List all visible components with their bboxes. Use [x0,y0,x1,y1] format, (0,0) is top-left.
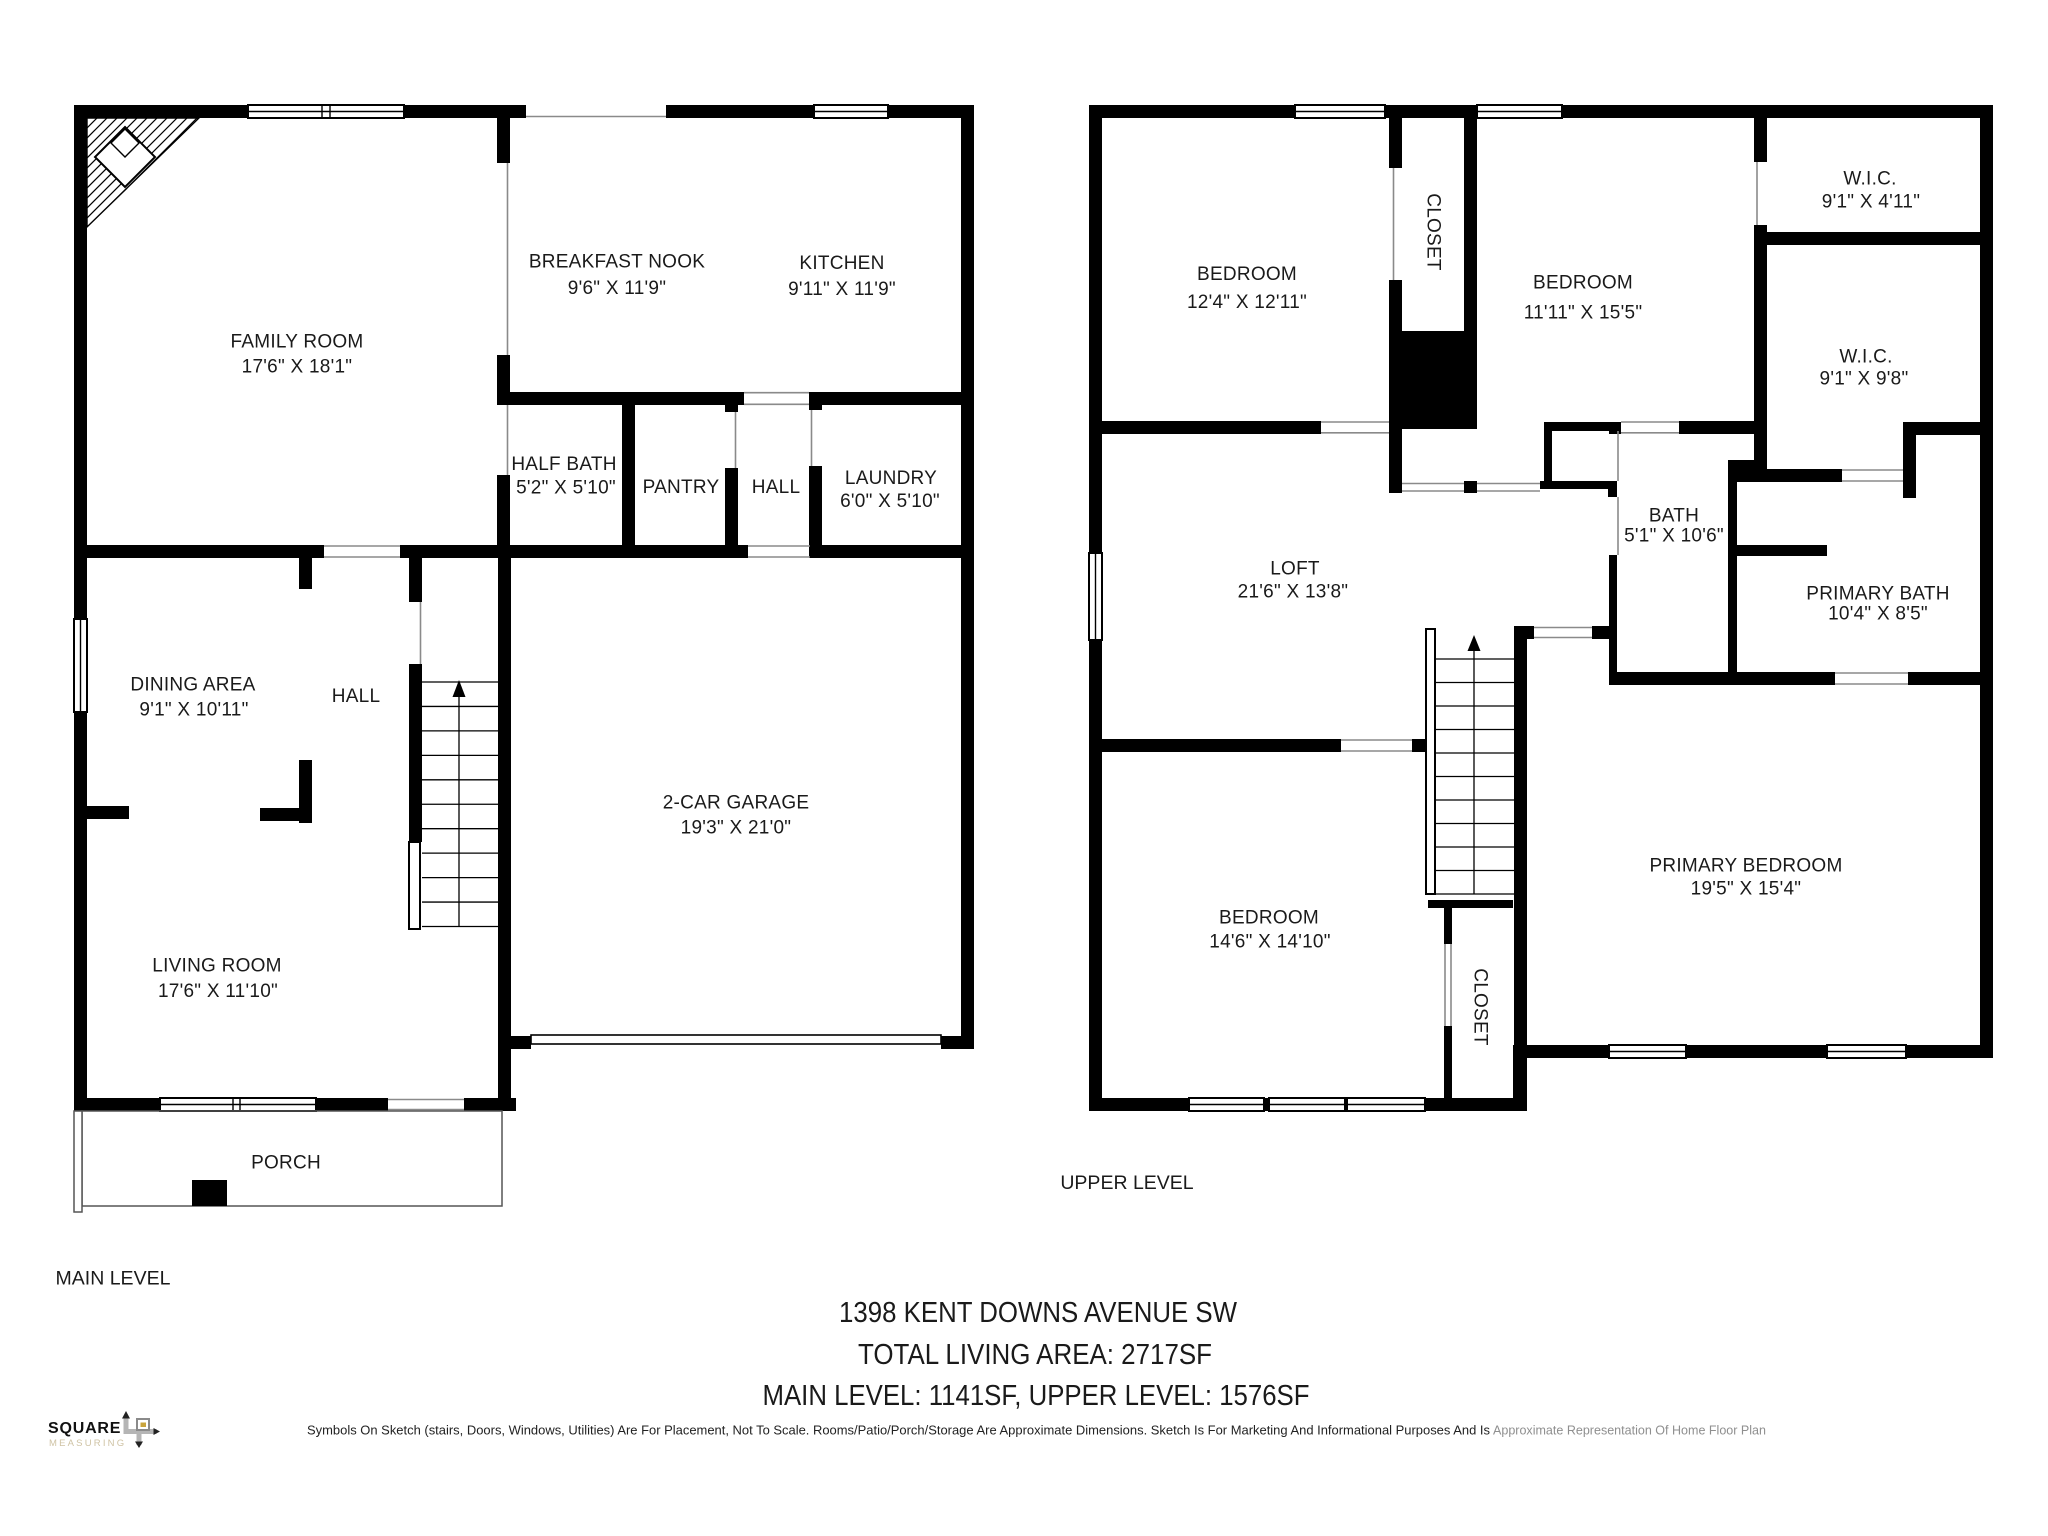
svg-text:BEDROOM: BEDROOM [1197,264,1297,285]
svg-text:9'11" X 11'9": 9'11" X 11'9" [788,279,896,300]
svg-text:BEDROOM: BEDROOM [1219,908,1319,929]
svg-text:17'6" X 11'10": 17'6" X 11'10" [158,981,278,1002]
svg-text:19'3" X 21'0": 19'3" X 21'0" [681,818,792,839]
svg-text:KITCHEN: KITCHEN [799,253,884,274]
svg-text:17'6" X 18'1": 17'6" X 18'1" [242,357,353,378]
svg-text:BATH: BATH [1649,506,1699,527]
svg-text:W.I.C.: W.I.C. [1839,347,1892,368]
svg-text:Approximate Representation Of: Approximate Representation Of Home Floor… [1493,1423,1766,1438]
svg-text:FAMILY ROOM: FAMILY ROOM [231,332,364,353]
svg-text:SQUARE: SQUARE [48,1420,121,1437]
svg-text:PANTRY: PANTRY [643,477,720,498]
svg-text:6'0" X 5'10": 6'0" X 5'10" [840,491,940,512]
svg-text:19'5" X 15'4": 19'5" X 15'4" [1691,879,1802,900]
svg-text:HALL: HALL [752,477,801,498]
svg-text:10'4" X 8'5": 10'4" X 8'5" [1828,604,1928,625]
svg-text:LAUNDRY: LAUNDRY [845,468,937,489]
svg-text:PORCH: PORCH [251,1153,321,1174]
svg-text:CLOSET: CLOSET [1469,968,1490,1046]
svg-text:LOFT: LOFT [1270,559,1320,580]
svg-text:9'6" X 11'9": 9'6" X 11'9" [568,278,666,299]
svg-text:UPPER LEVEL: UPPER LEVEL [1060,1172,1193,1194]
svg-text:9'1" X 4'11": 9'1" X 4'11" [1822,192,1920,213]
svg-text:9'1" X 10'11": 9'1" X 10'11" [139,700,248,721]
svg-text:DINING AREA: DINING AREA [130,675,255,696]
svg-text:21'6" X 13'8": 21'6" X 13'8" [1238,582,1349,603]
svg-text:Symbols On Sketch (stairs, Doo: Symbols On Sketch (stairs, Doors, Window… [307,1423,1490,1438]
svg-text:MAIN LEVEL: 1141SF, UPPER LEVE: MAIN LEVEL: 1141SF, UPPER LEVEL: 1576SF [763,1380,1310,1412]
svg-text:5'1" X 10'6": 5'1" X 10'6" [1624,526,1724,547]
svg-text:BEDROOM: BEDROOM [1533,273,1633,294]
svg-text:MAIN LEVEL: MAIN LEVEL [56,1267,171,1289]
svg-text:BREAKFAST NOOK: BREAKFAST NOOK [529,252,705,273]
svg-text:PRIMARY BEDROOM: PRIMARY BEDROOM [1649,856,1842,877]
svg-text:LIVING ROOM: LIVING ROOM [152,956,281,977]
svg-text:MEASURING: MEASURING [49,1438,126,1449]
svg-text:5'2" X 5'10": 5'2" X 5'10" [516,478,616,499]
svg-text:1398 KENT DOWNS AVENUE SW: 1398 KENT DOWNS AVENUE SW [839,1297,1238,1329]
svg-text:2-CAR GARAGE: 2-CAR GARAGE [663,793,810,814]
svg-text:W.I.C.: W.I.C. [1843,169,1896,190]
svg-text:11'11" X 15'5": 11'11" X 15'5" [1524,303,1643,324]
svg-text:CLOSET: CLOSET [1422,193,1443,271]
svg-text:14'6" X 14'10": 14'6" X 14'10" [1209,932,1330,953]
svg-text:TOTAL LIVING AREA: 2717SF: TOTAL LIVING AREA: 2717SF [858,1339,1212,1371]
svg-text:9'1" X 9'8": 9'1" X 9'8" [1820,369,1909,390]
svg-text:PRIMARY BATH: PRIMARY BATH [1806,584,1949,605]
svg-text:HALL: HALL [332,686,381,707]
svg-text:HALF BATH: HALF BATH [511,454,616,475]
svg-text:12'4" X 12'11": 12'4" X 12'11" [1187,292,1307,313]
